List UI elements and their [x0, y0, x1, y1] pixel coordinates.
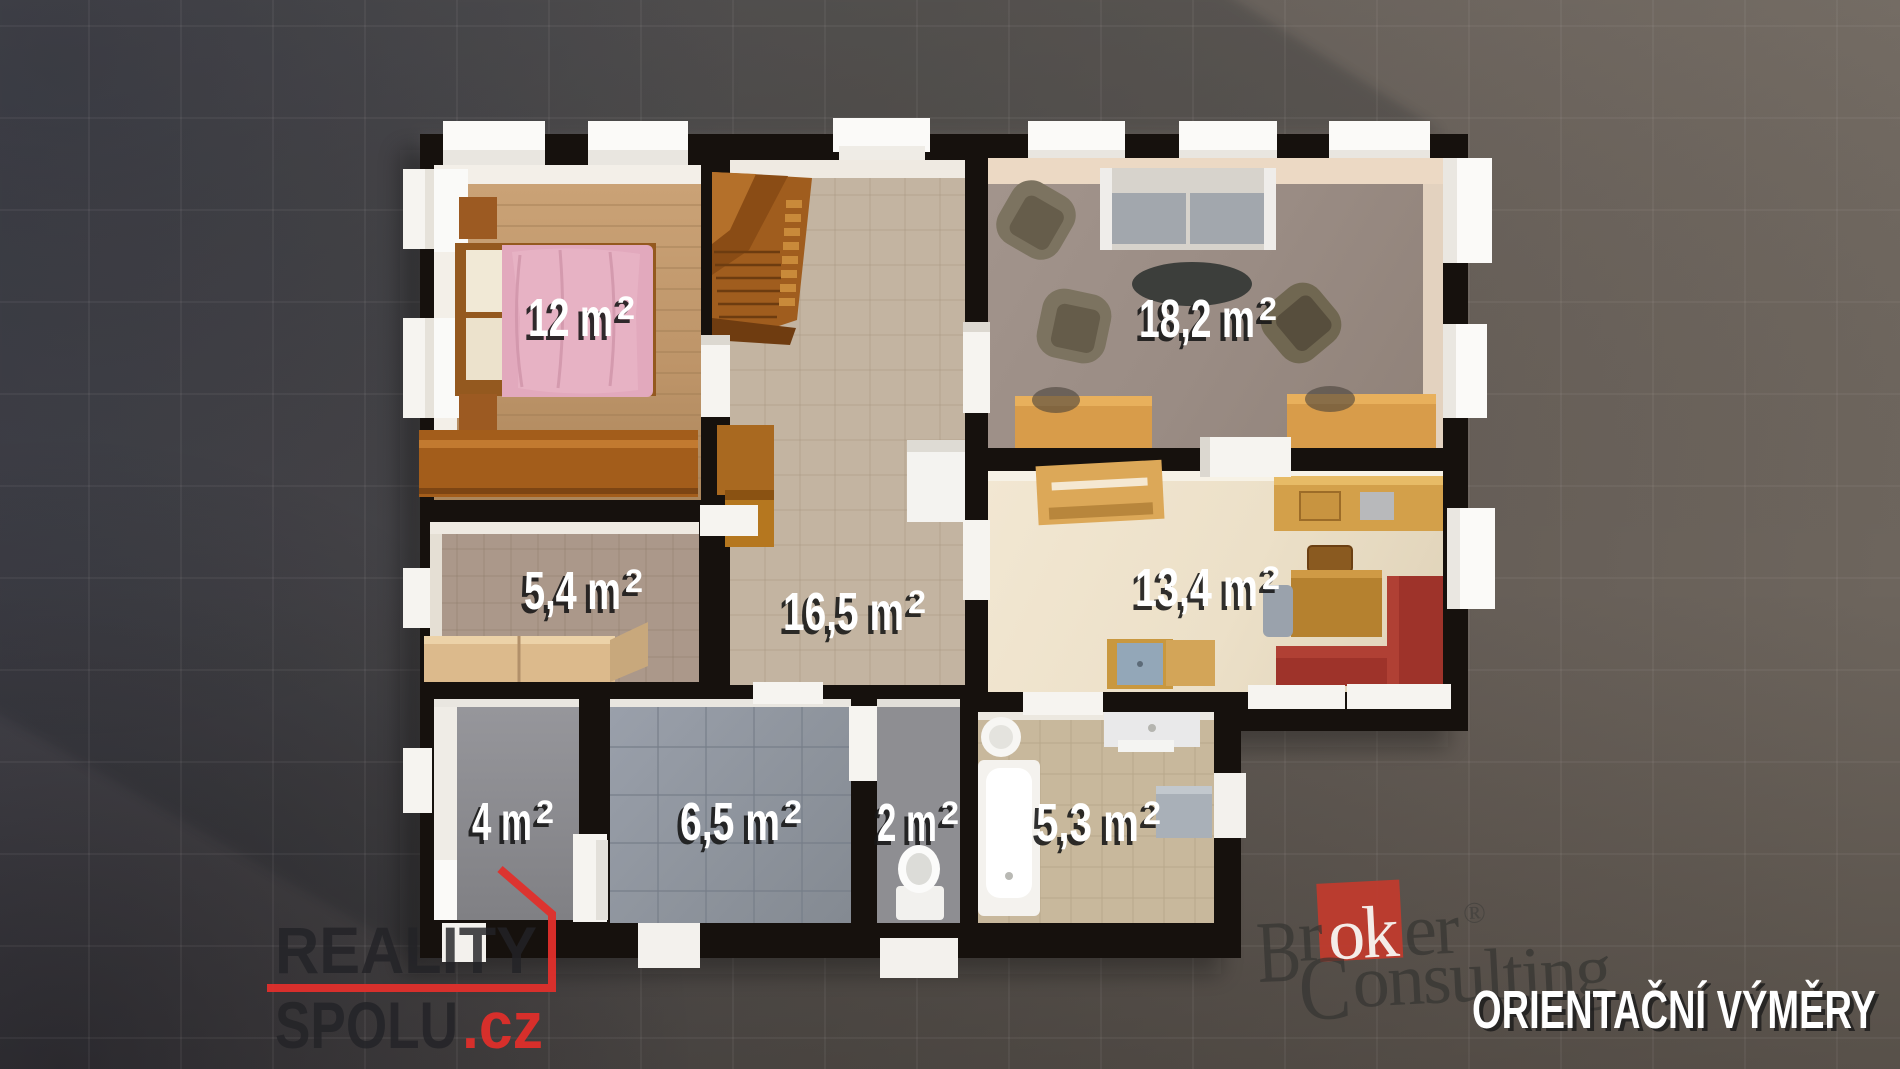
svg-text:REALITY: REALITY — [275, 913, 537, 987]
svg-text:6,5 m: 6,5 m — [680, 792, 780, 852]
svg-text:5,4 m: 5,4 m — [524, 561, 621, 621]
svg-text:2: 2 — [941, 795, 959, 831]
svg-text:2: 2 — [908, 584, 926, 620]
svg-text:2: 2 — [536, 794, 554, 830]
svg-text:.cz: .cz — [462, 988, 543, 1062]
svg-text:4 m: 4 m — [472, 792, 532, 852]
svg-text:5,3 m: 5,3 m — [1036, 793, 1139, 853]
svg-text:SPOLU: SPOLU — [275, 988, 458, 1062]
svg-text:2 m: 2 m — [877, 793, 937, 853]
svg-text:2: 2 — [1262, 560, 1280, 596]
svg-text:2: 2 — [1259, 291, 1277, 327]
svg-text:C: C — [1296, 935, 1353, 1040]
svg-text:ORIENTAČNÍ VÝMĚRY: ORIENTAČNÍ VÝMĚRY — [1472, 979, 1876, 1040]
svg-text:12 m: 12 m — [528, 288, 613, 348]
svg-text:2: 2 — [784, 794, 802, 830]
svg-text:16,5 m: 16,5 m — [783, 582, 904, 642]
svg-text:2: 2 — [1143, 795, 1161, 831]
svg-text:2: 2 — [617, 290, 635, 326]
svg-text:13,4 m: 13,4 m — [1135, 558, 1258, 618]
svg-text:2: 2 — [625, 563, 643, 599]
svg-text:18,2 m: 18,2 m — [1139, 289, 1255, 349]
svg-text:®: ® — [1462, 896, 1486, 930]
